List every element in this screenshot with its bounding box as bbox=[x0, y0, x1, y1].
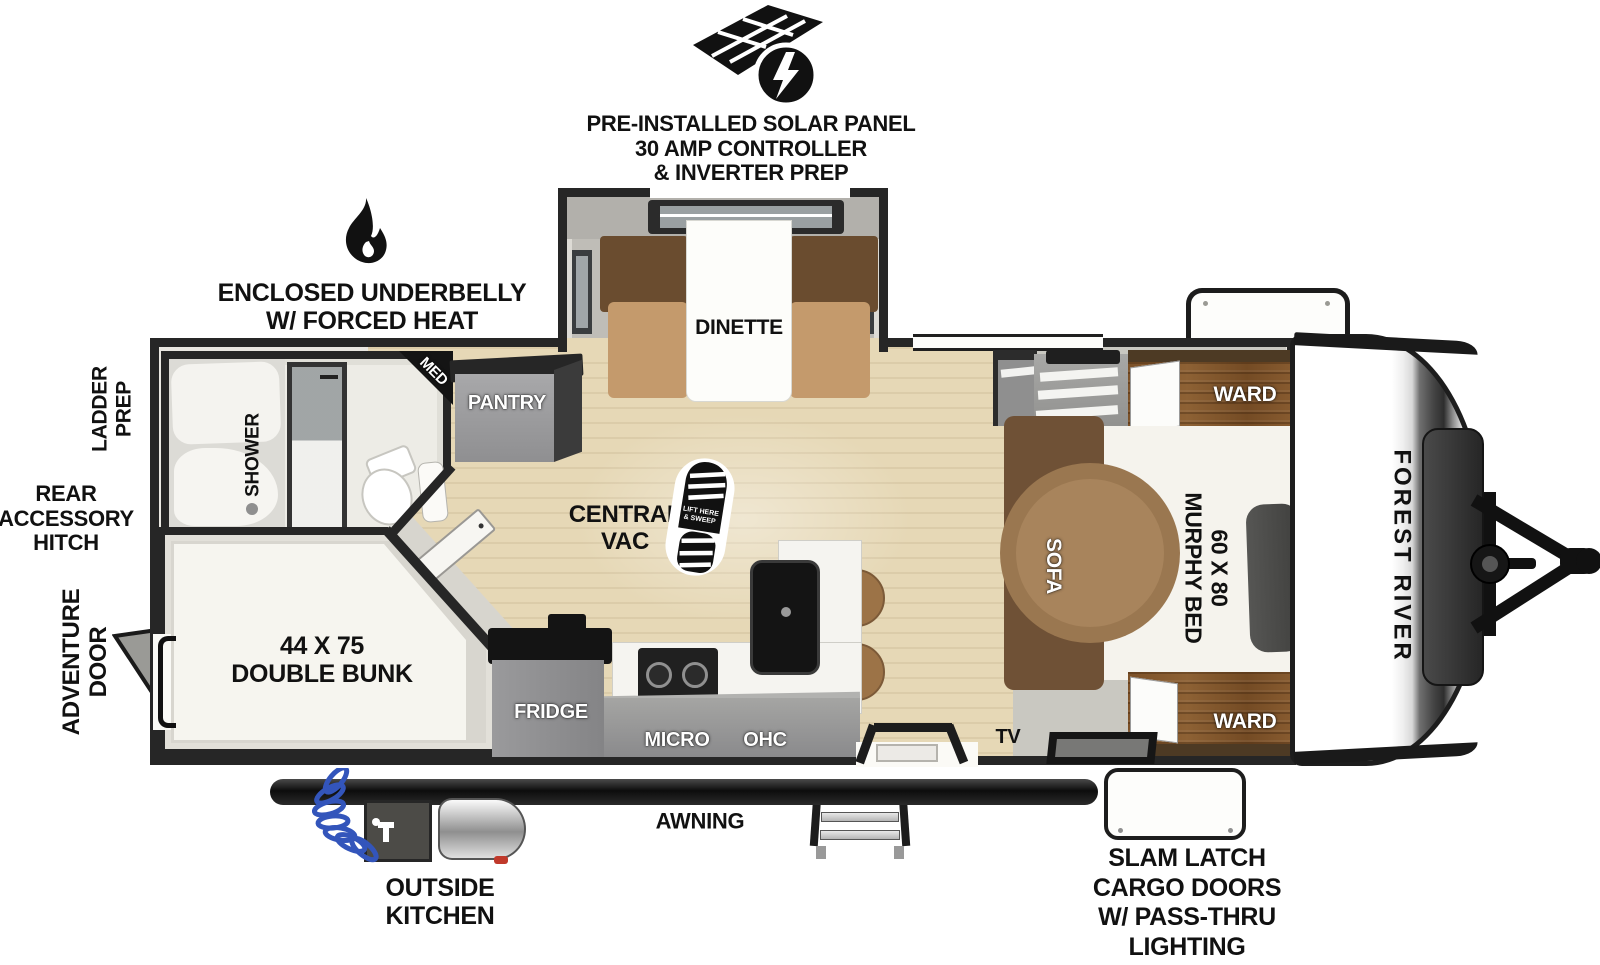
outside-kitchen-label: OUTSIDE KITCHEN bbox=[385, 874, 494, 930]
cabinet-end bbox=[993, 350, 1037, 426]
outside-kitchen-griddle bbox=[438, 798, 526, 860]
fridge-top bbox=[488, 628, 612, 664]
stove-burner bbox=[646, 662, 672, 688]
fridge-top-riser bbox=[548, 614, 586, 632]
adventure-door-frame bbox=[158, 636, 176, 728]
ward-top-label: WARD bbox=[1214, 383, 1277, 407]
rear-accessory-hitch-label: REAR ACCESSORY HITCH bbox=[0, 482, 141, 556]
dinette-bench-left-cushion bbox=[608, 302, 688, 398]
tv-label: TV bbox=[996, 726, 1021, 748]
pantry bbox=[455, 374, 554, 462]
front-window bbox=[913, 334, 1103, 351]
dinette-label: DINETTE bbox=[695, 316, 783, 340]
screw-dot bbox=[1203, 301, 1208, 306]
slideout-window-band bbox=[650, 188, 850, 198]
door-handle bbox=[478, 522, 485, 529]
fridge-label: FRIDGE bbox=[514, 701, 588, 723]
shower-stall bbox=[169, 359, 285, 532]
overhead-cabinet bbox=[604, 698, 860, 757]
brand-label: FOREST RIVER bbox=[1388, 449, 1415, 662]
pantry-label: PANTRY bbox=[468, 392, 546, 414]
door-handle bbox=[320, 375, 338, 379]
ohc-label: OHC bbox=[743, 729, 787, 751]
shower-label: SHOWER bbox=[242, 413, 263, 497]
sofa-label: SOFA bbox=[1041, 538, 1065, 594]
hitch-icon bbox=[1468, 456, 1600, 660]
tv bbox=[1046, 732, 1157, 764]
pantry-side bbox=[554, 360, 582, 462]
griddle-knob bbox=[494, 856, 508, 864]
entry-door-step bbox=[876, 744, 938, 762]
screw-dot bbox=[1228, 828, 1233, 833]
water-hose-icon bbox=[312, 768, 390, 863]
dinette-table bbox=[686, 220, 792, 402]
floorplan-canvas: PRE-INSTALLED SOLAR PANEL 30 AMP CONTROL… bbox=[0, 0, 1600, 965]
shower-glass-door bbox=[287, 362, 347, 532]
entry-door-lintel bbox=[874, 723, 952, 732]
flame-icon bbox=[340, 198, 388, 268]
underbelly-feature-label: ENCLOSED UNDERBELLY W/ FORCED HEAT bbox=[162, 279, 582, 335]
dinette-bench-right bbox=[790, 236, 878, 312]
sofa-cushion bbox=[1016, 479, 1164, 627]
murphy-bed-label: 60 X 80 MURPHY BED bbox=[1180, 492, 1233, 643]
screw-dot bbox=[1325, 301, 1330, 306]
stove-burner bbox=[682, 662, 708, 688]
ward-bottom-label: WARD bbox=[1214, 710, 1277, 734]
outside-faucet bbox=[372, 818, 398, 848]
solar-feature-label: PRE-INSTALLED SOLAR PANEL 30 AMP CONTROL… bbox=[571, 112, 931, 186]
dinette-bench-left bbox=[600, 236, 688, 312]
cargo-door-bottom bbox=[1104, 768, 1246, 840]
slideout-window-left bbox=[572, 250, 592, 334]
awning-label: AWNING bbox=[656, 810, 745, 835]
solar-panel-icon bbox=[683, 0, 828, 110]
bunk-label: 44 X 75 DOUBLE BUNK bbox=[231, 632, 412, 688]
adventure-door-label: ADVENTURE DOOR bbox=[59, 582, 113, 742]
micro-label: MICRO bbox=[644, 729, 709, 751]
wardrobe-top-door bbox=[1130, 360, 1180, 433]
cargo-doors-label: SLAM LATCH CARGO DOORS W/ PASS-THRU LIGH… bbox=[1057, 844, 1317, 962]
ladder-prep-label: LADDER PREP bbox=[88, 344, 135, 474]
screw-dot bbox=[1118, 828, 1123, 833]
dinette-bench-right-cushion bbox=[790, 302, 870, 398]
sink-faucet bbox=[781, 607, 791, 617]
kitchen-sink bbox=[750, 560, 820, 675]
shower-head bbox=[246, 503, 258, 515]
